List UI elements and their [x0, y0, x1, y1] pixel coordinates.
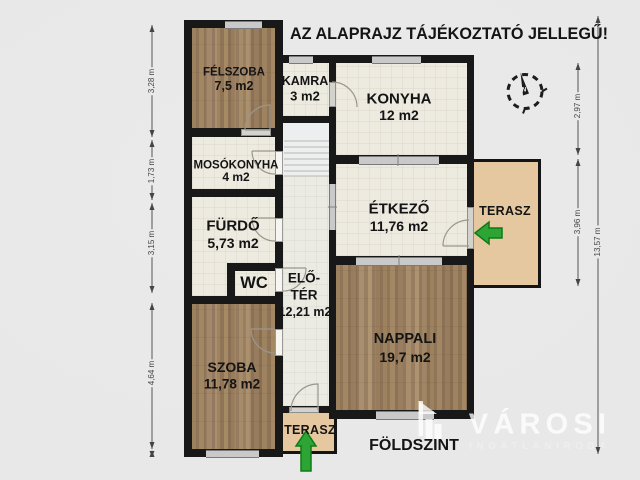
svg-text:N: N [522, 88, 526, 94]
